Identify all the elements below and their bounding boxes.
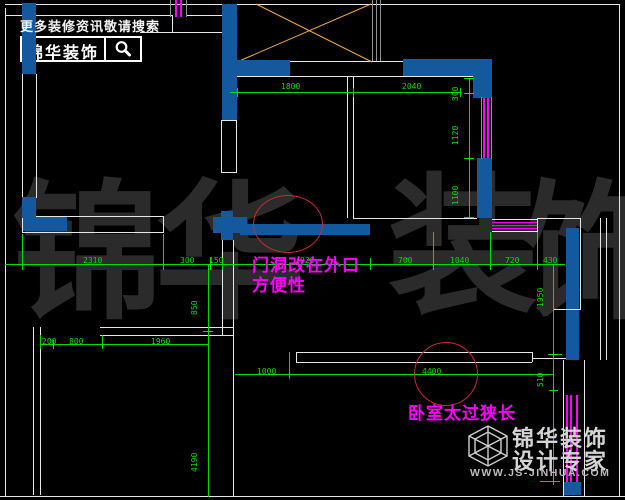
wall-segment [564, 482, 581, 495]
window-line [487, 98, 489, 158]
dimension-line [208, 264, 209, 497]
dimension-tick [102, 335, 103, 349]
window-frame-line [492, 231, 538, 232]
dimension-label: 1100 [452, 186, 460, 205]
dimension-label: 800 [69, 338, 83, 346]
dimension-label: 700 [398, 257, 412, 265]
window-line [175, 0, 177, 17]
dimension-label: 300 [180, 257, 194, 265]
wall-line [353, 218, 477, 219]
wall-segment [222, 4, 237, 120]
dimension-label: 4190 [191, 453, 199, 472]
dimension-extension [22, 234, 23, 270]
border-line [5, 8, 6, 497]
wall-line [537, 218, 581, 219]
dimension-label: 1950 [537, 288, 545, 307]
wall-line [33, 327, 34, 495]
footer-website[interactable]: WWW.JS-JINHUA.COM [470, 467, 610, 479]
wall-line [353, 76, 354, 218]
dimension-tick [237, 88, 238, 97]
dimension-extension [490, 232, 491, 270]
dimension-label: 1000 [257, 368, 276, 376]
wall-segment [477, 158, 492, 218]
wall-line [553, 309, 581, 310]
dimension-tick [40, 335, 41, 349]
wall-column [221, 211, 233, 240]
dimension-label: 1800 [281, 83, 300, 91]
wall-line [532, 358, 566, 359]
dimension-label: 1960 [151, 338, 170, 346]
wall-line [36, 74, 37, 198]
wall-line [172, 15, 173, 33]
dimension-label: 150 [209, 257, 223, 265]
shaft-line [380, 0, 381, 61]
annotation-bedroom-note: 卧室太过狭长 [408, 404, 516, 424]
dimension-line [235, 374, 553, 375]
dimension-label: 2310 [83, 257, 102, 265]
wall-segment [22, 3, 36, 74]
dimension-tick [464, 217, 474, 218]
markup-circle [414, 342, 478, 406]
dimension-tick [464, 158, 474, 159]
wall-line [222, 240, 223, 335]
dimension-tick [540, 481, 560, 482]
window-line [483, 98, 485, 158]
dimension-tick [549, 390, 558, 391]
markup-circle [253, 195, 323, 253]
dimension-tick [203, 331, 213, 332]
wall-line [40, 327, 41, 495]
dimension-tick [548, 354, 562, 355]
dimension-line [40, 344, 208, 345]
wall-line [233, 240, 234, 497]
annotation-door-note: 门洞改在外口 方便性 [252, 256, 360, 296]
dimension-line [469, 78, 470, 218]
dimension-label: 2040 [402, 83, 421, 91]
window-jamb-line [170, 0, 171, 17]
stairwell-cross-icon [230, 2, 375, 64]
wall-line [237, 76, 473, 77]
dimension-extension [433, 232, 434, 270]
shaft-line [376, 0, 377, 61]
dimension-tick [464, 93, 474, 94]
cad-floorplan-screenshot: 锦 华 装 饰 [0, 0, 625, 500]
wall-line [100, 335, 233, 336]
wall-line [296, 352, 532, 353]
dimension-label: 720 [505, 257, 519, 265]
dimension-label: 300 [452, 87, 460, 101]
dimension-line [230, 92, 461, 93]
wall-segment [566, 228, 579, 360]
dimension-label: 1040 [450, 257, 469, 265]
dimension-label: 200 [42, 338, 56, 346]
window-frame-line [492, 219, 538, 220]
wall-segment [22, 197, 36, 218]
wall-line [347, 76, 348, 218]
dimension-extension [537, 232, 538, 270]
window-line [492, 228, 538, 229]
wall-segment [473, 59, 492, 98]
dimension-tick [370, 258, 371, 270]
annotation-line: 方便性 [252, 276, 360, 296]
wall-line [532, 352, 533, 362]
dimension-extension [289, 352, 290, 379]
window-line [492, 222, 538, 223]
window-jamb-line [481, 97, 482, 159]
wall-segment [23, 217, 67, 231]
wall-line [580, 218, 581, 310]
window-line [180, 0, 182, 17]
wall-segment [237, 60, 290, 76]
wall-line [296, 352, 297, 362]
wall-line [606, 218, 607, 360]
wall-line [187, 15, 222, 16]
dimension-tick [353, 88, 354, 97]
dimension-label: 850 [191, 301, 199, 315]
window-jamb-line [186, 0, 187, 17]
dimension-extension [163, 234, 164, 270]
annotation-line: 门洞改在外口 [252, 256, 360, 276]
border-line [0, 496, 625, 497]
dimension-tick [464, 78, 474, 79]
promo-text: 更多装修资讯敬请搜索 [20, 16, 160, 35]
window-line [492, 225, 538, 226]
wall-line [600, 218, 601, 360]
promo-header: 更多装修资讯敬请搜索 [20, 16, 160, 35]
wall-line [296, 362, 532, 363]
dimension-tick [460, 88, 461, 97]
window-jamb-line [491, 97, 492, 159]
border-line [619, 4, 620, 497]
dimension-label: 1120 [452, 126, 460, 145]
dimension-label: 430 [543, 257, 557, 265]
wall-line [100, 327, 233, 328]
door-opening [221, 120, 237, 173]
cube-logo-icon [466, 424, 510, 468]
